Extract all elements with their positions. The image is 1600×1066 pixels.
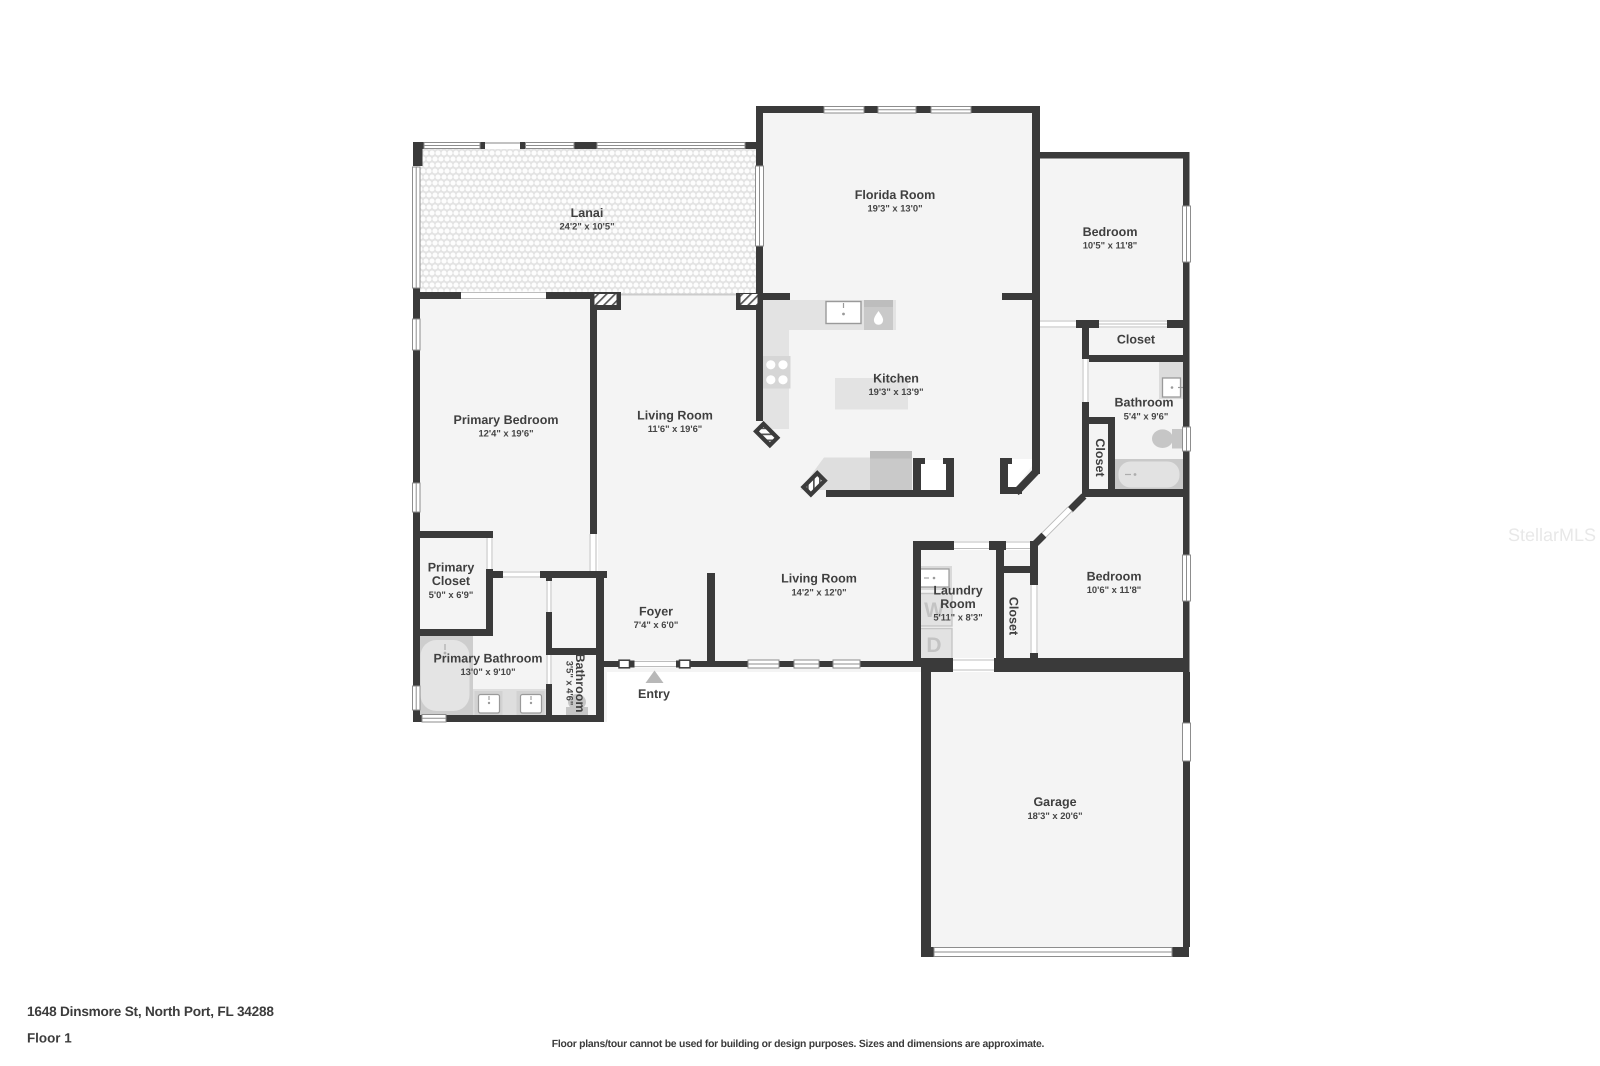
svg-text:5'11" x 8'3": 5'11" x 8'3": [933, 612, 982, 623]
svg-text:D: D: [926, 634, 941, 657]
svg-text:14'2" x 12'0": 14'2" x 12'0": [791, 587, 846, 598]
svg-text:Bedroom: Bedroom: [1087, 570, 1142, 584]
svg-text:19'3" x 13'9": 19'3" x 13'9": [868, 386, 923, 397]
svg-text:13'0" x 9'10": 13'0" x 9'10": [460, 666, 515, 677]
svg-text:10'5" x 11'8": 10'5" x 11'8": [1083, 240, 1138, 251]
svg-text:Entry: Entry: [638, 687, 670, 701]
svg-text:Closet: Closet: [432, 574, 471, 588]
svg-text:24'2" x 10'5": 24'2" x 10'5": [559, 221, 614, 232]
svg-text:Bedroom: Bedroom: [1083, 225, 1138, 239]
svg-text:18'3" x 20'6": 18'3" x 20'6": [1027, 810, 1082, 821]
svg-text:Foyer: Foyer: [639, 605, 673, 619]
svg-text:Lanai: Lanai: [571, 206, 604, 220]
svg-text:Laundry: Laundry: [933, 584, 982, 598]
svg-text:Primary Bathroom: Primary Bathroom: [433, 652, 542, 666]
svg-text:Floor 1: Floor 1: [27, 1031, 72, 1046]
svg-text:Primary: Primary: [428, 561, 475, 575]
svg-text:1648 Dinsmore St, North Port,: 1648 Dinsmore St, North Port, FL 34288: [27, 1004, 274, 1019]
svg-text:Kitchen: Kitchen: [873, 372, 919, 386]
svg-text:19'3" x 13'0": 19'3" x 13'0": [867, 203, 922, 214]
svg-text:10'6" x 11'8": 10'6" x 11'8": [1087, 584, 1142, 595]
svg-text:Closet: Closet: [1117, 333, 1156, 347]
svg-text:11'6" x 19'6": 11'6" x 19'6": [648, 423, 703, 434]
svg-text:Garage: Garage: [1033, 795, 1076, 809]
svg-text:Florida Room: Florida Room: [855, 188, 936, 202]
svg-text:5'0" x 6'9": 5'0" x 6'9": [429, 589, 474, 600]
svg-text:StellarMLS: StellarMLS: [1508, 525, 1596, 545]
svg-text:Closet: Closet: [1007, 597, 1021, 636]
svg-text:Living Room: Living Room: [637, 409, 713, 423]
svg-text:3'5" x 4'6": 3'5" x 4'6": [565, 661, 576, 706]
svg-text:Closet: Closet: [1093, 438, 1107, 477]
svg-text:Primary Bedroom: Primary Bedroom: [454, 413, 559, 427]
svg-text:Room: Room: [940, 597, 975, 611]
svg-text:5'4" x 9'6": 5'4" x 9'6": [1124, 411, 1169, 422]
svg-text:Living Room: Living Room: [781, 572, 857, 586]
svg-text:Floor plans/tour cannot be use: Floor plans/tour cannot be used for buil…: [552, 1039, 1045, 1050]
svg-text:12'4" x 19'6": 12'4" x 19'6": [478, 428, 533, 439]
svg-text:7'4" x 6'0": 7'4" x 6'0": [634, 619, 679, 630]
svg-text:Bathroom: Bathroom: [1114, 396, 1173, 410]
